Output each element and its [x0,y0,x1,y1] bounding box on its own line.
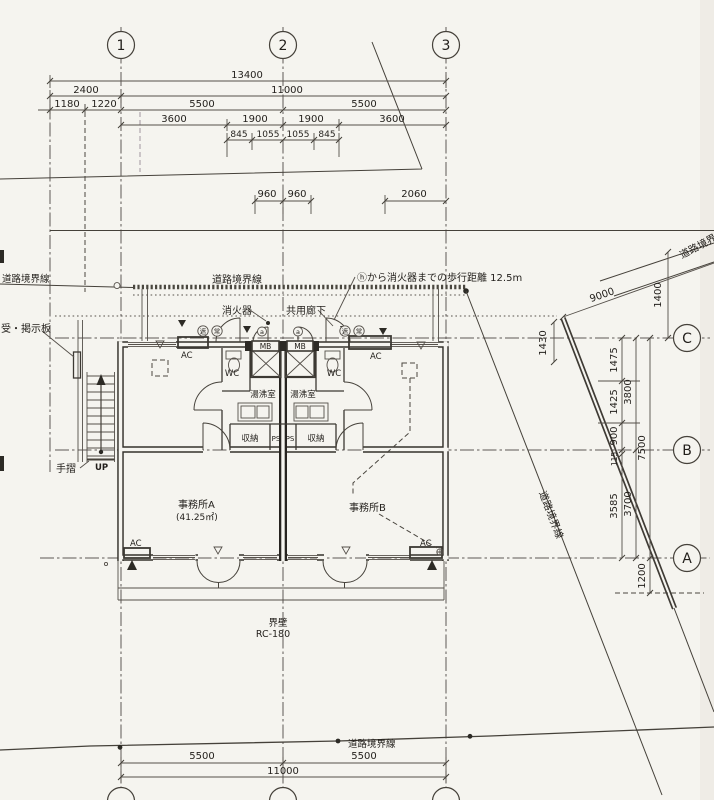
wc-label-left: WC [225,369,239,379]
dim-3585: 3585 [609,493,620,518]
fire-extinguisher-label: 消火器 [222,304,252,317]
fire-extinguisher-note: ⓗから消火器までの歩行距離 12.5m [357,271,522,284]
dim-960-l: 960 [257,189,276,200]
dim-1055-r: 1055 [287,130,310,140]
dim-1200: 1200 [637,563,648,588]
dim-1400: 1400 [653,282,664,307]
up-label: UP [95,463,108,473]
meter-boxes [245,341,319,351]
dim-845-l: 845 [230,130,247,140]
handr​ail-label: 手摺 [56,462,76,475]
road-boundary-label-left: 道路境界線 [2,273,50,285]
dim-1900-r: 1900 [298,114,323,125]
road-boundary-label-bottom: 道路境界線 [348,738,396,750]
grid-bubble-c: C [682,331,692,347]
dim-1900-l: 1900 [242,114,267,125]
mb-label-right: MB [294,342,306,351]
dim-1220: 1220 [91,99,116,110]
office-b-label: 事務所B [349,501,386,514]
dim-5500-top-r: 5500 [351,99,376,110]
dim-115: 115 [610,452,619,467]
scan-mark-left-top [0,250,4,263]
wc-label-right: WC [327,369,341,379]
dim-3600-l: 3600 [161,114,186,125]
storage-label-left: 収納 [241,433,258,444]
dim-3700: 3700 [623,491,634,516]
kitchenette-label-left: 湯沸室 [250,389,276,400]
grid-bubble-1: 1 [117,38,126,54]
ps-label-right: PS [286,435,295,443]
dim-11000-top: 11000 [271,85,303,96]
dim-13400: 13400 [231,70,263,81]
dim-2400: 2400 [73,85,98,96]
smoke-tag-left: 遮 [200,327,207,336]
normal-tag-left: 常 [214,327,221,336]
dim-3800: 3800 [623,379,634,404]
grid-bubble-3: 3 [442,38,451,54]
ac-label-top-left: AC [181,351,193,361]
dim-960-r: 960 [287,189,306,200]
dim-11000-bot: 11000 [267,766,299,777]
door-tag-a-right: a [296,328,300,336]
dim-5500-top-l: 5500 [189,99,214,110]
smoke-tag-right: 遮 [342,327,349,336]
bulletin-board-label: 受・掲示板 [1,322,51,335]
common-corridor-label: 共用廊下 [286,304,326,317]
kitchenette-label-right: 湯沸室 [290,389,316,400]
ac-label-bottom-left: AC [130,539,142,549]
dim-1425: 1425 [609,389,620,414]
dim-1180: 1180 [54,99,79,110]
floor-plan-page: 1 2 3 C B A 13400 2400 11000 1180 1220 5… [0,0,714,800]
mb-label-left: MB [260,342,272,351]
scan-mark-left-bottom [0,456,4,471]
dim-1475: 1475 [609,347,620,372]
dim-845-r: 845 [318,130,335,140]
office-a-label: 事務所A [178,498,215,511]
normal-tag-right: 常 [356,327,363,336]
party-wall-spec-label: RC-180 [256,629,290,640]
door-tag-a-left: a [260,328,264,336]
dim-5500-bot-r: 5500 [351,751,376,762]
party-wall-label: 界壁 [268,617,288,629]
ac-label-bottom-right: AC [420,539,432,549]
grid-bubble-b: B [682,443,692,459]
office-a-area-label: (41.25㎡) [176,512,218,523]
dim-1430: 1430 [538,330,549,355]
fire-extinguisher-symbol [266,321,270,325]
dim-7500: 7500 [637,435,648,460]
dim-2060: 2060 [401,189,426,200]
road-boundary-label-center: 道路境界線 [212,273,262,286]
ac-label-top-right: AC [370,352,382,362]
grid-bubble-a: A [682,551,692,567]
floor-plan-drawing: 1 2 3 C B A 13400 2400 11000 1180 1220 5… [0,0,714,800]
grid-bubble-2: 2 [279,38,288,54]
dim-900: 900 [609,426,620,445]
dim-5500-bot-l: 5500 [189,751,214,762]
ps-label-left: PS [272,435,281,443]
dim-1055-l: 1055 [257,130,280,140]
storage-label-right: 収納 [307,433,324,444]
dim-3600-r: 3600 [379,114,404,125]
